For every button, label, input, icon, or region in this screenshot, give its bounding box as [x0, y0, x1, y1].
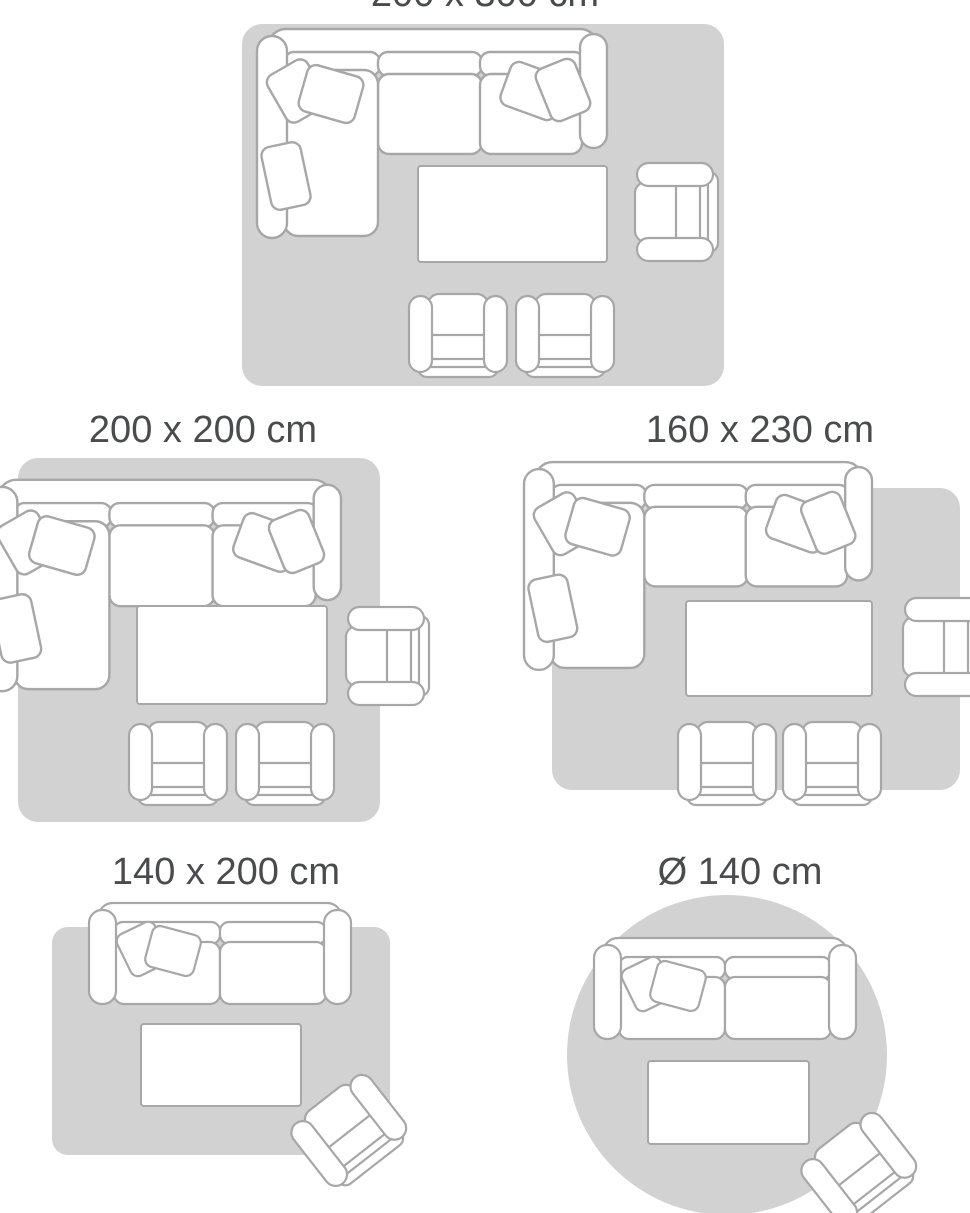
two-seat-sofa-icon: [593, 937, 857, 1043]
armchair-icon: [408, 293, 508, 379]
armchair-icon: [902, 597, 970, 697]
coffee-table-icon: [140, 1023, 302, 1107]
coffee-table-icon: [417, 165, 608, 263]
rug-size-label-140x200: 140 x 200 cm: [26, 850, 426, 894]
armchair-icon: [782, 721, 882, 807]
armchair-icon: [677, 721, 777, 807]
armchair-icon: [345, 606, 431, 706]
armchair-icon: [235, 721, 335, 807]
two-seat-sofa-icon: [88, 902, 352, 1008]
rug-size-label-160x230: 160 x 230 cm: [560, 408, 960, 452]
coffee-table-icon: [647, 1060, 810, 1145]
armchair-icon: [128, 721, 228, 807]
rug-size-label-140-round: Ø 140 cm: [540, 850, 940, 894]
coffee-table-icon: [136, 605, 328, 705]
rug-size-label-200x300: 200 x 300 cm: [285, 0, 685, 16]
rug-size-guide-diagram: 200 x 300 cm 200 x 200 cm 160 x 230 cm: [0, 0, 970, 1213]
armchair-icon: [515, 293, 615, 379]
rug-size-label-200x200: 200 x 200 cm: [3, 408, 403, 452]
coffee-table-icon: [685, 600, 873, 697]
armchair-icon: [634, 162, 720, 262]
